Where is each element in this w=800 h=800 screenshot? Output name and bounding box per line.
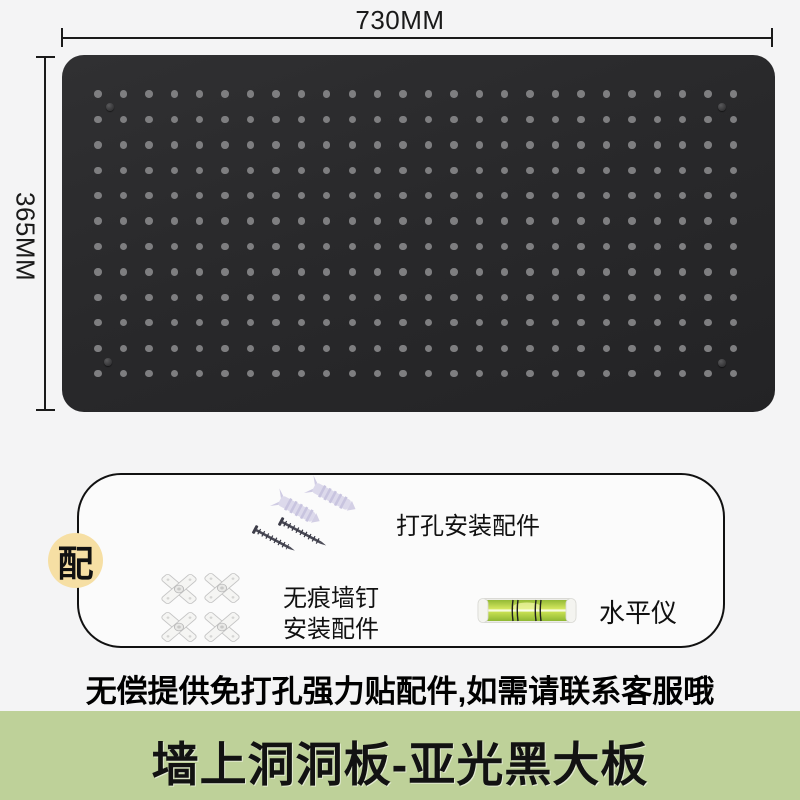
peg-hole xyxy=(323,268,330,275)
peg-hole xyxy=(730,243,737,250)
peg-hole xyxy=(145,319,152,326)
cross-nail-icon xyxy=(161,573,198,604)
peg-hole xyxy=(145,345,152,352)
peg-hole xyxy=(704,116,711,123)
peg-hole xyxy=(450,319,457,326)
peg-hole xyxy=(221,319,228,326)
mounting-screw xyxy=(104,358,113,367)
peg-hole xyxy=(425,268,432,275)
peg-hole xyxy=(196,192,203,199)
peg-hole xyxy=(654,319,661,326)
peg-hole xyxy=(730,294,737,301)
pegboard-holes xyxy=(62,55,775,412)
peg-hole xyxy=(450,167,457,174)
peg-hole xyxy=(171,167,178,174)
peg-hole xyxy=(603,345,610,352)
height-dimension-line xyxy=(44,57,46,411)
peg-hole xyxy=(501,192,508,199)
peg-hole xyxy=(120,90,127,97)
peg-hole xyxy=(628,319,635,326)
peg-hole xyxy=(730,116,737,123)
peg-hole xyxy=(450,345,457,352)
peg-hole xyxy=(501,319,508,326)
peg-hole xyxy=(399,294,406,301)
peg-hole xyxy=(323,116,330,123)
mounting-screw xyxy=(106,103,115,112)
peg-hole xyxy=(247,345,254,352)
peg-hole xyxy=(476,319,483,326)
peg-hole xyxy=(374,370,381,377)
peg-hole xyxy=(247,116,254,123)
peg-hole xyxy=(603,217,610,224)
peg-hole xyxy=(323,167,330,174)
peg-hole xyxy=(94,243,101,250)
peg-hole xyxy=(272,370,279,377)
peg-hole xyxy=(247,243,254,250)
peg-hole xyxy=(603,192,610,199)
peg-hole xyxy=(526,192,533,199)
peg-hole xyxy=(196,243,203,250)
peg-hole xyxy=(145,294,152,301)
peg-hole xyxy=(349,268,356,275)
peg-hole xyxy=(501,217,508,224)
peg-hole xyxy=(94,116,101,123)
peg-hole xyxy=(399,370,406,377)
nail-kit-label-line1: 无痕墙钉 xyxy=(283,583,379,614)
peg-hole xyxy=(425,243,432,250)
peg-hole xyxy=(196,345,203,352)
peg-hole xyxy=(476,192,483,199)
peg-hole xyxy=(603,319,610,326)
peg-hole xyxy=(247,192,254,199)
peg-hole xyxy=(425,370,432,377)
peg-hole xyxy=(628,116,635,123)
peg-hole xyxy=(577,243,584,250)
peg-hole xyxy=(476,90,483,97)
peg-hole xyxy=(171,268,178,275)
peg-hole xyxy=(730,217,737,224)
peg-hole xyxy=(272,319,279,326)
peg-hole xyxy=(425,345,432,352)
peg-hole xyxy=(196,319,203,326)
peg-hole xyxy=(171,243,178,250)
peg-hole xyxy=(425,90,432,97)
peg-hole xyxy=(120,243,127,250)
peg-hole xyxy=(247,217,254,224)
peg-hole xyxy=(374,192,381,199)
peg-hole xyxy=(171,370,178,377)
peg-hole xyxy=(120,370,127,377)
peg-hole xyxy=(94,192,101,199)
wall-anchor-icon xyxy=(270,488,324,530)
peg-hole xyxy=(603,90,610,97)
peg-hole xyxy=(374,116,381,123)
peg-hole xyxy=(171,217,178,224)
peg-hole xyxy=(374,319,381,326)
peg-hole xyxy=(704,217,711,224)
peg-hole xyxy=(654,268,661,275)
peg-hole xyxy=(196,116,203,123)
peg-hole xyxy=(349,370,356,377)
peg-hole xyxy=(171,319,178,326)
peg-hole xyxy=(450,370,457,377)
peg-hole xyxy=(679,192,686,199)
height-dimension-endcap-top xyxy=(36,56,55,58)
peg-hole xyxy=(145,116,152,123)
product-title-banner: 墙上洞洞板-亚光黑大板 xyxy=(0,711,800,800)
peg-hole xyxy=(730,167,737,174)
peg-hole xyxy=(374,141,381,148)
peg-hole xyxy=(349,167,356,174)
peg-hole xyxy=(298,217,305,224)
peg-hole xyxy=(704,90,711,97)
peg-hole xyxy=(425,167,432,174)
peg-hole xyxy=(145,141,152,148)
peg-hole xyxy=(603,243,610,250)
peg-hole xyxy=(145,90,152,97)
peg-hole xyxy=(196,141,203,148)
peg-hole xyxy=(704,167,711,174)
peg-hole xyxy=(552,141,559,148)
peg-hole xyxy=(221,345,228,352)
peg-hole xyxy=(374,243,381,250)
peg-hole xyxy=(349,217,356,224)
peg-hole xyxy=(552,116,559,123)
peg-hole xyxy=(654,217,661,224)
peg-hole xyxy=(603,141,610,148)
peg-hole xyxy=(450,141,457,148)
peg-hole xyxy=(399,90,406,97)
peg-hole xyxy=(298,294,305,301)
peg-hole xyxy=(221,370,228,377)
peg-hole xyxy=(298,319,305,326)
peg-hole xyxy=(577,294,584,301)
nail-kit-label: 无痕墙钉 安装配件 xyxy=(283,583,379,645)
peg-hole xyxy=(450,90,457,97)
peg-hole xyxy=(171,345,178,352)
screw-icon xyxy=(252,525,297,555)
peg-hole xyxy=(679,370,686,377)
peg-hole xyxy=(94,167,101,174)
peg-hole xyxy=(171,116,178,123)
peg-hole xyxy=(272,243,279,250)
peg-hole xyxy=(171,90,178,97)
peg-hole xyxy=(476,167,483,174)
peg-hole xyxy=(679,217,686,224)
peg-hole xyxy=(272,294,279,301)
peg-hole xyxy=(450,116,457,123)
peg-hole xyxy=(221,167,228,174)
peg-hole xyxy=(272,90,279,97)
peg-hole xyxy=(552,167,559,174)
peg-hole xyxy=(94,90,101,97)
peg-hole xyxy=(120,192,127,199)
peg-hole xyxy=(272,217,279,224)
peg-hole xyxy=(171,294,178,301)
peg-hole xyxy=(552,90,559,97)
peg-hole xyxy=(654,294,661,301)
peg-hole xyxy=(145,217,152,224)
peg-hole xyxy=(425,294,432,301)
peg-hole xyxy=(298,167,305,174)
peg-hole xyxy=(272,192,279,199)
peg-hole xyxy=(526,370,533,377)
peg-hole xyxy=(323,217,330,224)
peg-hole xyxy=(654,90,661,97)
peg-hole xyxy=(654,192,661,199)
peg-hole xyxy=(679,345,686,352)
peg-hole xyxy=(450,294,457,301)
peg-hole xyxy=(577,192,584,199)
mounting-screw xyxy=(718,103,727,112)
peg-hole xyxy=(94,370,101,377)
peg-hole xyxy=(603,268,610,275)
height-dimension-endcap-bottom xyxy=(36,409,55,411)
peg-hole xyxy=(577,90,584,97)
peg-hole xyxy=(120,294,127,301)
peg-hole xyxy=(501,268,508,275)
peg-hole xyxy=(552,192,559,199)
peg-hole xyxy=(577,116,584,123)
peg-hole xyxy=(450,243,457,250)
peg-hole xyxy=(628,192,635,199)
peg-hole xyxy=(628,268,635,275)
peg-hole xyxy=(526,319,533,326)
peg-hole xyxy=(476,141,483,148)
peg-hole xyxy=(603,116,610,123)
peg-hole xyxy=(450,217,457,224)
peg-hole xyxy=(526,294,533,301)
peg-hole xyxy=(399,217,406,224)
mounting-screw xyxy=(718,359,727,368)
peg-hole xyxy=(603,294,610,301)
peg-hole xyxy=(247,167,254,174)
peg-hole xyxy=(526,243,533,250)
peg-hole xyxy=(730,345,737,352)
peg-hole xyxy=(272,268,279,275)
peg-hole xyxy=(298,192,305,199)
peg-hole xyxy=(374,167,381,174)
peg-hole xyxy=(450,192,457,199)
peg-hole xyxy=(349,243,356,250)
peg-hole xyxy=(247,294,254,301)
drill-kit-label: 打孔安装配件 xyxy=(396,511,540,542)
peg-hole xyxy=(399,243,406,250)
peg-hole xyxy=(628,243,635,250)
peg-hole xyxy=(323,243,330,250)
peg-hole xyxy=(374,217,381,224)
peg-hole xyxy=(399,167,406,174)
peg-hole xyxy=(323,294,330,301)
peg-hole xyxy=(298,141,305,148)
level-label: 水平仪 xyxy=(599,598,677,629)
peg-hole xyxy=(628,90,635,97)
peg-hole xyxy=(120,167,127,174)
peg-hole xyxy=(654,167,661,174)
peg-hole xyxy=(323,90,330,97)
peg-hole xyxy=(501,243,508,250)
peg-hole xyxy=(603,370,610,377)
peg-hole xyxy=(221,268,228,275)
peg-hole xyxy=(628,370,635,377)
peg-hole xyxy=(120,217,127,224)
peg-hole xyxy=(221,116,228,123)
peg-hole xyxy=(94,345,101,352)
peg-hole xyxy=(120,268,127,275)
peg-hole xyxy=(577,268,584,275)
peg-hole xyxy=(399,192,406,199)
peg-hole xyxy=(577,345,584,352)
peg-hole xyxy=(196,90,203,97)
peg-hole xyxy=(654,141,661,148)
nail-kit-label-line2: 安装配件 xyxy=(283,614,379,645)
peg-hole xyxy=(298,345,305,352)
peg-hole xyxy=(628,217,635,224)
peg-hole xyxy=(577,141,584,148)
peg-hole xyxy=(399,116,406,123)
peg-hole xyxy=(298,370,305,377)
peg-hole xyxy=(476,294,483,301)
peg-hole xyxy=(399,268,406,275)
peg-hole xyxy=(196,268,203,275)
peg-hole xyxy=(704,141,711,148)
peg-hole xyxy=(145,268,152,275)
peg-hole xyxy=(704,319,711,326)
peg-hole xyxy=(374,268,381,275)
peg-hole xyxy=(679,116,686,123)
peg-hole xyxy=(679,167,686,174)
peg-hole xyxy=(654,370,661,377)
peg-hole xyxy=(349,90,356,97)
peg-hole xyxy=(94,294,101,301)
accessories-badge: 配 xyxy=(48,533,103,588)
peg-hole xyxy=(526,116,533,123)
width-dimension-line xyxy=(62,37,773,39)
spirit-level-icon xyxy=(477,596,577,626)
peg-hole xyxy=(730,192,737,199)
peg-hole xyxy=(221,217,228,224)
peg-hole xyxy=(349,345,356,352)
peg-hole xyxy=(501,370,508,377)
peg-hole xyxy=(425,192,432,199)
peg-hole xyxy=(94,268,101,275)
width-dimension-endcap-right xyxy=(771,28,773,47)
peg-hole xyxy=(526,90,533,97)
peg-hole xyxy=(221,192,228,199)
peg-hole xyxy=(425,141,432,148)
peg-hole xyxy=(399,141,406,148)
cross-nail-icon xyxy=(204,572,241,603)
peg-hole xyxy=(94,141,101,148)
peg-hole xyxy=(628,141,635,148)
peg-hole xyxy=(145,192,152,199)
peg-hole xyxy=(577,167,584,174)
peg-hole xyxy=(654,243,661,250)
peg-hole xyxy=(298,90,305,97)
peg-hole xyxy=(298,243,305,250)
peg-hole xyxy=(628,294,635,301)
peg-hole xyxy=(425,217,432,224)
wall-nail-cross-icons xyxy=(156,569,260,647)
peg-hole xyxy=(476,116,483,123)
peg-hole xyxy=(120,116,127,123)
peg-hole xyxy=(552,294,559,301)
peg-hole xyxy=(221,243,228,250)
peg-hole xyxy=(374,345,381,352)
peg-hole xyxy=(349,116,356,123)
width-dimension-endcap-left xyxy=(61,28,63,47)
peg-hole xyxy=(374,90,381,97)
cross-nail-icon xyxy=(204,611,241,642)
peg-hole xyxy=(247,90,254,97)
peg-hole xyxy=(425,319,432,326)
free-adhesive-caption: 无偿提供免打孔强力贴配件,如需请联系客服哦 xyxy=(0,666,800,711)
peg-hole xyxy=(145,370,152,377)
peg-hole xyxy=(552,319,559,326)
peg-hole xyxy=(730,90,737,97)
peg-hole xyxy=(679,319,686,326)
peg-hole xyxy=(704,268,711,275)
peg-hole xyxy=(628,345,635,352)
cross-nail-icon xyxy=(161,611,198,642)
peg-hole xyxy=(526,141,533,148)
peg-hole xyxy=(501,116,508,123)
peg-hole xyxy=(247,141,254,148)
peg-hole xyxy=(552,345,559,352)
peg-hole xyxy=(425,116,432,123)
width-dimension-label: 730MM xyxy=(0,5,800,36)
peg-hole xyxy=(730,141,737,148)
peg-hole xyxy=(247,268,254,275)
peg-hole xyxy=(552,370,559,377)
peg-hole xyxy=(476,345,483,352)
peg-hole xyxy=(145,243,152,250)
peg-hole xyxy=(577,319,584,326)
peg-hole xyxy=(704,370,711,377)
peg-hole xyxy=(323,192,330,199)
peg-hole xyxy=(603,167,610,174)
peg-hole xyxy=(349,319,356,326)
peg-hole xyxy=(679,90,686,97)
peg-hole xyxy=(476,370,483,377)
peg-hole xyxy=(349,141,356,148)
peg-hole xyxy=(704,243,711,250)
peg-hole xyxy=(247,370,254,377)
peg-hole xyxy=(272,345,279,352)
peg-hole xyxy=(221,90,228,97)
peg-hole xyxy=(526,167,533,174)
peg-hole xyxy=(120,345,127,352)
peg-hole xyxy=(501,294,508,301)
peg-hole xyxy=(730,319,737,326)
peg-hole xyxy=(704,345,711,352)
peg-hole xyxy=(196,294,203,301)
peg-hole xyxy=(654,116,661,123)
peg-hole xyxy=(171,192,178,199)
peg-hole xyxy=(399,319,406,326)
peg-hole xyxy=(221,294,228,301)
peg-hole xyxy=(298,268,305,275)
peg-hole xyxy=(323,141,330,148)
peg-hole xyxy=(501,141,508,148)
anchor-and-screw-icon xyxy=(246,474,396,566)
peg-hole xyxy=(399,345,406,352)
peg-hole xyxy=(221,141,228,148)
peg-hole xyxy=(679,268,686,275)
peg-hole xyxy=(654,345,661,352)
peg-hole xyxy=(196,167,203,174)
peg-hole xyxy=(272,116,279,123)
